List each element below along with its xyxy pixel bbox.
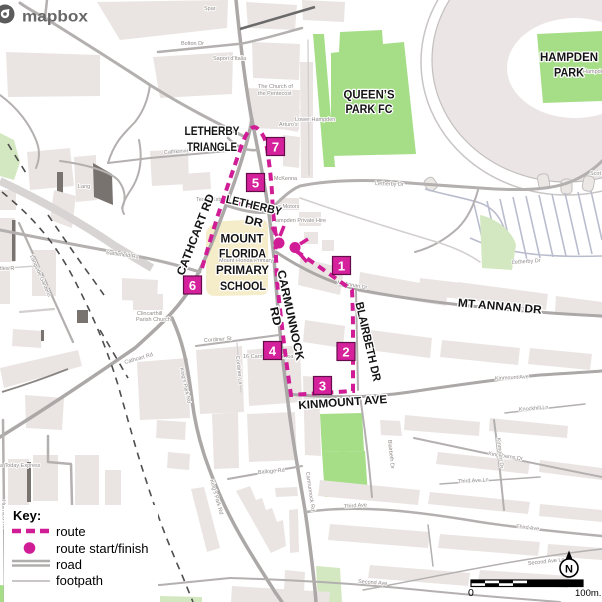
svg-text:a Today Express: a Today Express	[0, 463, 41, 469]
svg-text:PARK FC: PARK FC	[346, 104, 393, 116]
svg-text:MOUNT: MOUNT	[221, 234, 264, 246]
svg-text:Lang: Lang	[78, 184, 90, 190]
svg-text:PRIMARY: PRIMARY	[216, 265, 269, 277]
svg-text:SCHOOL: SCHOOL	[220, 281, 266, 293]
svg-text:route start/finish: route start/finish	[56, 541, 149, 556]
svg-text:QUEEN’S: QUEEN’S	[344, 89, 395, 101]
svg-text:0: 0	[468, 587, 474, 599]
svg-text:Sapori d'Italia: Sapori d'Italia	[213, 56, 247, 62]
svg-text:Bolton Dr: Bolton Dr	[181, 41, 204, 47]
svg-text:7: 7	[272, 140, 279, 155]
svg-text:LETHERBY: LETHERBY	[185, 126, 240, 138]
svg-text:1: 1	[338, 259, 345, 274]
svg-text:mapbox: mapbox	[22, 9, 88, 26]
svg-text:5: 5	[252, 176, 259, 191]
svg-text:Spar: Spar	[204, 6, 216, 12]
svg-text:Letherby Dr: Letherby Dr	[375, 181, 404, 188]
svg-text:3: 3	[319, 379, 326, 394]
svg-text:N: N	[565, 564, 573, 576]
svg-text:road: road	[56, 557, 82, 572]
svg-text:4: 4	[269, 344, 277, 359]
svg-text:HAMPDEN: HAMPDEN	[540, 52, 598, 64]
svg-text:the Pentecost: the Pentecost	[258, 91, 292, 97]
svg-text:Parish Church: Parish Church	[136, 317, 171, 323]
svg-text:footpath: footpath	[56, 573, 103, 588]
svg-text:PARK: PARK	[554, 68, 585, 80]
svg-text:100m.: 100m.	[575, 588, 601, 599]
svg-text:TRIANGLE: TRIANGLE	[187, 142, 237, 154]
svg-text:Lower Hampden: Lower Hampden	[295, 117, 335, 123]
svg-text:Scot: Scot	[590, 171, 601, 177]
svg-text:The Church of: The Church of	[258, 84, 293, 90]
svg-text:2: 2	[342, 345, 349, 360]
svg-text:Hampden: Hampden	[583, 69, 602, 75]
svg-text:tlea R: tlea R	[0, 266, 14, 272]
svg-text:route: route	[56, 524, 86, 539]
svg-text:Key:: Key:	[13, 508, 41, 523]
svg-text:Hampden Private Hire: Hampden Private Hire	[272, 218, 326, 224]
svg-text:FLORIDA: FLORIDA	[219, 249, 266, 261]
svg-text:6: 6	[189, 278, 196, 293]
